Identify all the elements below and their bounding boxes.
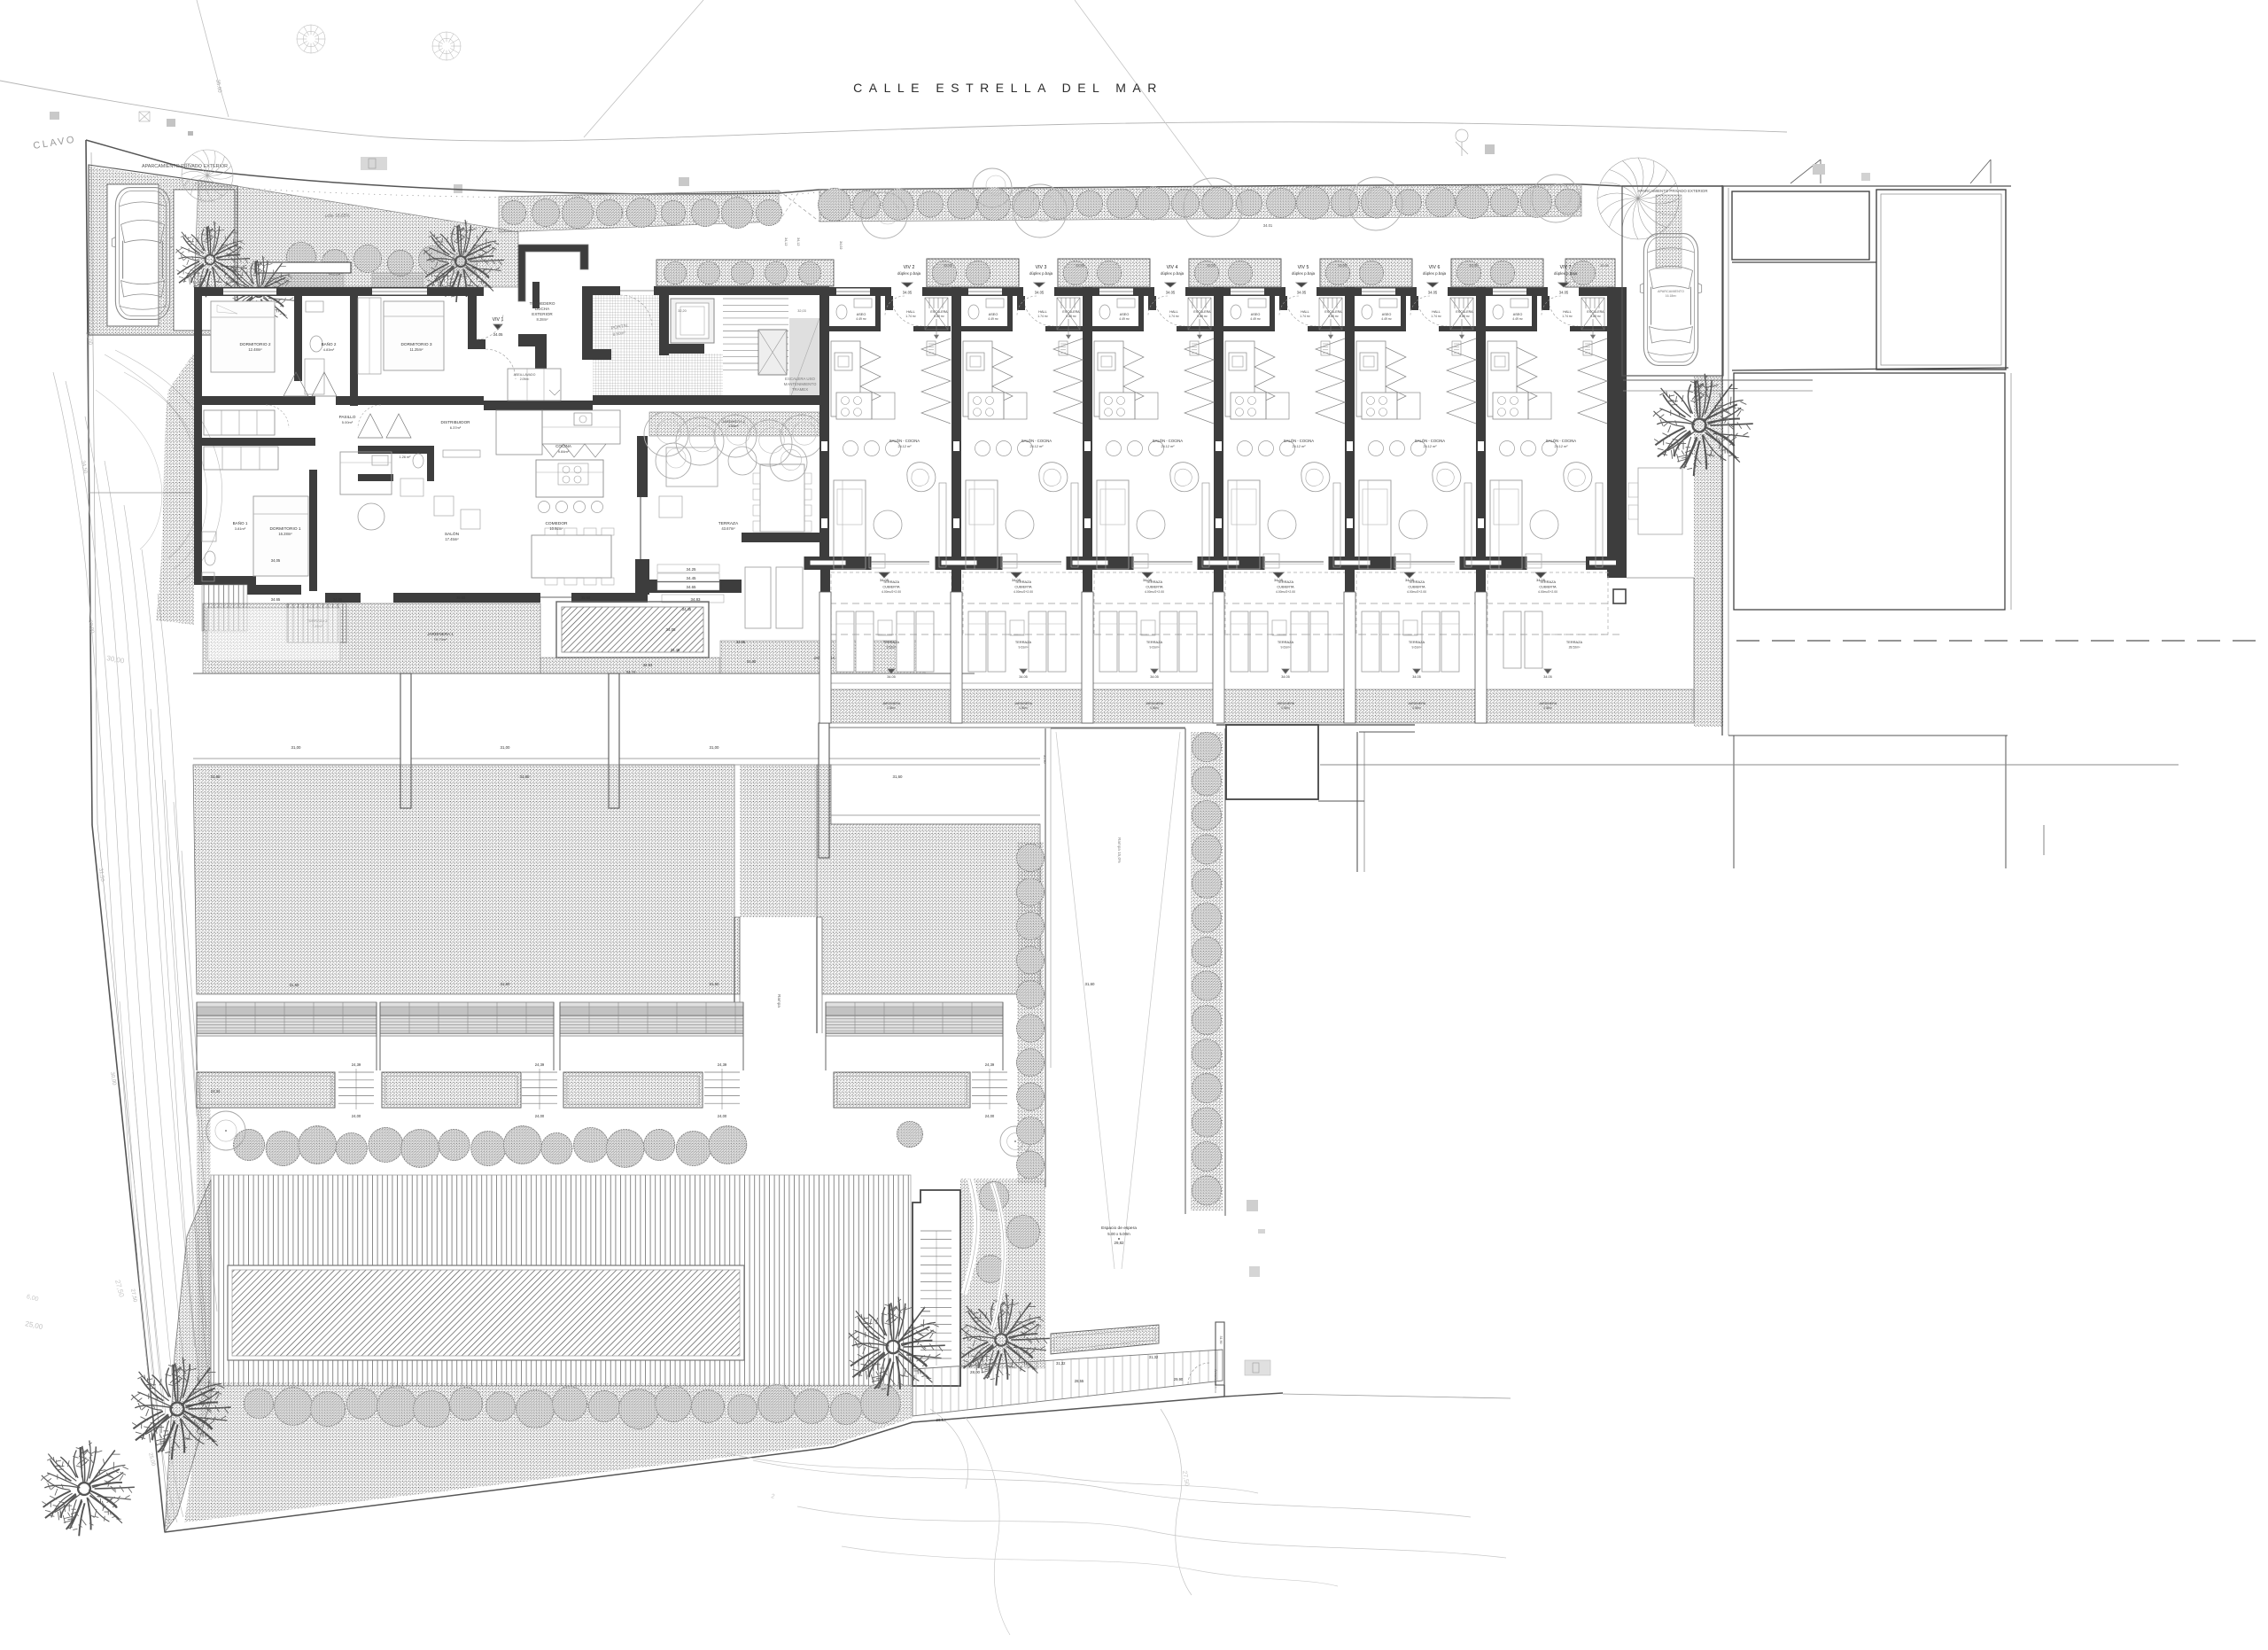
svg-text:9.61m²: 9.61m²	[1150, 646, 1161, 650]
svg-text:ASEO: ASEO	[1251, 313, 1261, 316]
svg-text:4.36m²: 4.36m²	[1412, 706, 1421, 710]
svg-text:VIV 2: VIV 2	[904, 265, 915, 270]
svg-text:24.12 m²: 24.12 m²	[898, 445, 913, 448]
svg-text:4.83m²: 4.83m²	[323, 347, 335, 352]
svg-text:VIV 6: VIV 6	[1429, 265, 1441, 270]
svg-text:17.45m²: 17.45m²	[445, 537, 459, 541]
svg-text:16.28m²: 16.28m²	[278, 532, 292, 536]
svg-text:CUBIERTA: CUBIERTA	[1277, 585, 1294, 589]
svg-text:33,95: 33,95	[1469, 264, 1478, 268]
svg-text:VIV 4: VIV 4	[1167, 265, 1178, 270]
svg-text:24,00: 24,00	[718, 1114, 727, 1118]
svg-text:29,90: 29,90	[1174, 1377, 1184, 1381]
svg-text:31,00: 31,00	[710, 745, 720, 750]
svg-text:31,60: 31,60	[710, 982, 720, 986]
svg-text:33,95: 33,95	[1600, 264, 1609, 268]
svg-text:Rampa: Rampa	[777, 994, 781, 1008]
svg-text:SALÓN - COCINA: SALÓN - COCINA	[1153, 439, 1183, 443]
svg-text:34.05: 34.05	[1405, 578, 1415, 582]
svg-text:CALLE ESTRELLA DEL MAR: CALLE ESTRELLA DEL MAR	[853, 81, 1163, 95]
svg-text:34.05: 34.05	[1412, 675, 1421, 679]
svg-text:34.05: 34.05	[1543, 675, 1552, 679]
svg-text:28,55: 28,55	[1075, 1379, 1084, 1383]
svg-text:24,34: 24,34	[211, 1089, 221, 1094]
svg-text:dúplex p.baja: dúplex p.baja	[1161, 271, 1184, 276]
svg-text:APARCAMIENTO PRIVADO EXTERIOR: APARCAMIENTO PRIVADO EXTERIOR	[142, 164, 228, 169]
svg-text:JARDINERA: JARDINERA	[1539, 702, 1557, 705]
svg-text:34.05: 34.05	[1150, 675, 1159, 679]
svg-text:24,00: 24,00	[985, 1114, 995, 1118]
svg-text:1.26 m²: 1.26 m²	[400, 455, 412, 459]
svg-text:TERRAZA: TERRAZA	[1409, 640, 1425, 644]
svg-text:SALÓN - COCINA: SALÓN - COCINA	[889, 439, 920, 443]
svg-text:29,82: 29,82	[1115, 1241, 1125, 1245]
svg-text:dúplex p.baja: dúplex p.baja	[1554, 271, 1578, 276]
svg-text:4.00m²/2+2.00: 4.00m²/2+2.00	[1407, 590, 1426, 594]
svg-text:PASILLO: PASILLO	[339, 415, 356, 419]
svg-text:HALL: HALL	[1169, 310, 1178, 314]
svg-text:pdte 16,65%: pdte 16,65%	[325, 214, 351, 219]
svg-text:CUBIERTA: CUBIERTA	[882, 585, 900, 589]
svg-text:JARDINERA: JARDINERA	[1014, 702, 1033, 705]
svg-text:TERRAZA: TERRAZA	[1015, 640, 1032, 644]
svg-text:JARDINERA 1: JARDINERA 1	[427, 632, 454, 636]
svg-text:34.05: 34.05	[880, 578, 889, 582]
svg-text:24,00: 24,00	[535, 1114, 545, 1118]
svg-text:31,00: 31,00	[291, 745, 302, 750]
svg-text:dúplex p.baja: dúplex p.baja	[897, 271, 921, 276]
svg-text:34.65: 34.65	[271, 597, 281, 602]
svg-text:EXTERIOR: EXTERIOR	[532, 312, 553, 316]
svg-text:24,39: 24,39	[718, 1062, 727, 1067]
svg-text:9.84m²: 9.84m²	[558, 449, 570, 454]
svg-text:34.05: 34.05	[903, 291, 913, 295]
svg-text:34.05: 34.05	[1012, 578, 1021, 582]
svg-text:31,32: 31,32	[1056, 1361, 1066, 1366]
svg-text:9.61m²: 9.61m²	[887, 646, 897, 650]
svg-text:28.52m²: 28.52m²	[1569, 646, 1581, 650]
svg-text:35.00: 35.00	[581, 595, 591, 600]
svg-text:34,05: 34,05	[666, 627, 677, 632]
svg-text:24,39: 24,39	[985, 1062, 995, 1067]
svg-text:24,00: 24,00	[352, 1114, 361, 1118]
svg-text:34.05: 34.05	[1143, 578, 1153, 582]
svg-text:ASEO: ASEO	[1120, 313, 1130, 316]
svg-text:31,60: 31,60	[520, 774, 531, 779]
svg-text:ASEO: ASEO	[400, 450, 410, 455]
svg-text:1.74 m²: 1.74 m²	[905, 315, 916, 318]
svg-text:31,60: 31,60	[211, 774, 221, 779]
svg-text:34.45: 34.45	[687, 576, 697, 580]
svg-text:SALÓN - COCINA: SALÓN - COCINA	[1021, 439, 1052, 443]
svg-text:34.05: 34.05	[1536, 578, 1546, 582]
svg-text:24,39: 24,39	[352, 1062, 361, 1067]
svg-text:SALÓN - COCINA: SALÓN - COCINA	[1546, 439, 1576, 443]
svg-text:ESCALERA USO: ESCALERA USO	[785, 377, 816, 381]
svg-text:16.18m²: 16.18m²	[1666, 294, 1677, 298]
svg-text:ASEA-LAVADO: ASEA-LAVADO	[514, 373, 536, 377]
svg-text:34,05: 34,05	[271, 558, 281, 563]
svg-text:9.61m²: 9.61m²	[1281, 646, 1292, 650]
svg-text:4.36m²: 4.36m²	[1019, 706, 1028, 710]
svg-text:CUBIERTA: CUBIERTA	[1014, 585, 1032, 589]
svg-text:JARDINERA: JARDINERA	[882, 702, 901, 705]
svg-text:32,20: 32,20	[678, 309, 687, 313]
svg-text:dúplex p.baja: dúplex p.baja	[1423, 271, 1447, 276]
svg-text:4.49 m²: 4.49 m²	[856, 317, 866, 321]
svg-text:1.74 m²: 1.74 m²	[1169, 315, 1179, 318]
svg-text:5.00m²: 5.00m²	[342, 420, 353, 424]
svg-text:34.65: 34.65	[687, 585, 697, 589]
svg-text:CUBIERTA: CUBIERTA	[1539, 585, 1557, 589]
svg-text:ASEO: ASEO	[989, 313, 998, 316]
svg-text:43.67m²: 43.67m²	[721, 526, 735, 531]
svg-text:31,32: 31,32	[1149, 1355, 1159, 1359]
svg-text:32,03: 32,03	[797, 309, 806, 313]
svg-text:34.01: 34.01	[1263, 223, 1273, 228]
svg-text:31,00: 31,00	[501, 745, 511, 750]
svg-text:ASEO: ASEO	[1382, 313, 1392, 316]
svg-text:24.12 m²: 24.12 m²	[1161, 445, 1176, 448]
svg-text:TERRAZA: TERRAZA	[1566, 640, 1583, 644]
svg-text:31,60: 31,60	[893, 774, 904, 779]
svg-text:34.83: 34.83	[643, 663, 653, 667]
svg-text:5.00 x 5.00m: 5.00 x 5.00m	[1107, 1232, 1130, 1236]
svg-text:31,60: 31,60	[501, 982, 511, 986]
svg-text:24.12 m²: 24.12 m²	[1555, 445, 1569, 448]
svg-text:TERRAZA: TERRAZA	[1278, 640, 1294, 644]
svg-text:SALÓN - COCINA: SALÓN - COCINA	[1415, 439, 1445, 443]
svg-text:6.37m²: 6.37m²	[450, 425, 462, 430]
svg-text:1.74 m²: 1.74 m²	[1562, 315, 1573, 318]
svg-text:ASEO: ASEO	[857, 313, 866, 316]
svg-text:34.05: 34.05	[1274, 578, 1284, 582]
svg-text:HALL: HALL	[906, 310, 915, 314]
svg-text:ESCALERA: ESCALERA	[1324, 310, 1342, 314]
svg-text:34.05: 34.05	[1297, 291, 1307, 295]
svg-text:VIV 5: VIV 5	[1298, 265, 1309, 270]
svg-text:34,45: 34,45	[671, 648, 680, 652]
svg-text:JARDINERA: JARDINERA	[1146, 702, 1164, 705]
svg-text:JARDINERA: JARDINERA	[1408, 702, 1426, 705]
svg-text:COCINA: COCINA	[555, 444, 572, 448]
svg-text:DISTRIBUIDOR: DISTRIBUIDOR	[441, 420, 471, 424]
svg-text:HALL: HALL	[1038, 310, 1047, 314]
svg-text:31,90: 31,90	[1219, 1336, 1223, 1344]
svg-text:CUBIERTA: CUBIERTA	[1146, 585, 1163, 589]
svg-text:11.25m²: 11.25m²	[409, 347, 423, 352]
svg-text:31,90: 31,90	[1043, 755, 1046, 764]
svg-text:VIV 7: VIV 7	[1560, 265, 1572, 270]
svg-text:APARCAMIENTO PRIVADO EXTERIOR: APARCAMIENTO PRIVADO EXTERIOR	[1637, 189, 1707, 193]
svg-text:4.00m²/2+2.00: 4.00m²/2+2.00	[1276, 590, 1295, 594]
svg-text:33,95: 33,95	[1076, 264, 1084, 268]
svg-text:34.05: 34.05	[1166, 291, 1176, 295]
svg-text:ESCALERA: ESCALERA	[930, 310, 948, 314]
svg-text:BAÑO 2: BAÑO 2	[322, 341, 337, 346]
svg-text:34.05: 34.05	[1019, 675, 1028, 679]
svg-text:Espacio de espera: Espacio de espera	[1101, 1226, 1137, 1231]
svg-text:ASEO: ASEO	[1513, 313, 1523, 316]
svg-text:34.25: 34.25	[687, 567, 697, 572]
svg-text:33,95: 33,95	[1207, 264, 1216, 268]
svg-text:33,95: 33,95	[944, 264, 952, 268]
svg-text:4.36m²: 4.36m²	[887, 706, 896, 710]
svg-text:TERRAZA: TERRAZA	[883, 640, 900, 644]
svg-text:APARCAMIENTO: APARCAMIENTO	[1658, 290, 1684, 293]
svg-text:TRAMEX: TRAMEX	[792, 387, 808, 392]
svg-text:31,60: 31,60	[1085, 982, 1096, 986]
svg-text:BAÑO 1: BAÑO 1	[233, 520, 248, 525]
svg-text:34.05: 34.05	[1035, 291, 1045, 295]
svg-text:VIV 3: VIV 3	[1036, 265, 1047, 270]
svg-text:HALL: HALL	[1301, 310, 1309, 314]
svg-text:34.05: 34.05	[1559, 291, 1569, 295]
svg-text:HALL: HALL	[1432, 310, 1441, 314]
svg-text:8.28m²: 8.28m²	[536, 317, 548, 322]
svg-text:12.48m²: 12.48m²	[248, 347, 262, 352]
svg-text:2.09m²: 2.09m²	[520, 377, 530, 381]
svg-text:4.00m²/2+2.00: 4.00m²/2+2.00	[1014, 590, 1033, 594]
svg-text:DUCHA: DUCHA	[535, 307, 550, 311]
svg-text:dúplex p.baja: dúplex p.baja	[1029, 271, 1053, 276]
svg-text:34.05: 34.05	[1428, 291, 1438, 295]
svg-text:34,12: 34,12	[784, 237, 788, 246]
svg-text:4.49 m²: 4.49 m²	[988, 317, 998, 321]
svg-text:4.00m²/2+2.00: 4.00m²/2+2.00	[882, 590, 901, 594]
svg-text:SALÓN: SALÓN	[445, 531, 460, 537]
svg-text:34,60: 34,60	[747, 659, 757, 664]
svg-text:SALÓN - COCINA: SALÓN - COCINA	[1284, 439, 1314, 443]
svg-text:TENDEDERO: TENDEDERO	[530, 301, 555, 306]
svg-text:79.73m²: 79.73m²	[434, 637, 447, 642]
svg-text:MANTENIMIENTO: MANTENIMIENTO	[784, 382, 817, 386]
svg-text:34.65: 34.65	[736, 640, 746, 644]
svg-text:1.74 m²: 1.74 m²	[1300, 315, 1310, 318]
svg-text:TERRAZA: TERRAZA	[1146, 640, 1163, 644]
svg-text:4.36m²: 4.36m²	[1150, 706, 1159, 710]
svg-text:4.36m²: 4.36m²	[1543, 706, 1552, 710]
svg-text:ESCALERA: ESCALERA	[1193, 310, 1211, 314]
svg-text:4.49 m²: 4.49 m²	[1381, 317, 1392, 321]
svg-text:34.83: 34.83	[691, 597, 702, 602]
svg-text:34,12: 34,12	[796, 237, 800, 246]
svg-text:10.92m²: 10.92m²	[549, 526, 563, 531]
svg-text:3.81m²: 3.81m²	[235, 526, 246, 531]
svg-text:1.74 m²: 1.74 m²	[1431, 315, 1441, 318]
svg-text:34,02: 34,02	[839, 241, 843, 250]
svg-text:34.05: 34.05	[1281, 675, 1290, 679]
svg-text:4.00m²/2+2.00: 4.00m²/2+2.00	[1538, 590, 1557, 594]
svg-text:28,00: 28,00	[970, 1370, 981, 1374]
svg-text:34.85: 34.85	[333, 597, 343, 602]
svg-text:4.49 m²: 4.49 m²	[1250, 317, 1261, 321]
svg-text:ESCALERA: ESCALERA	[1062, 310, 1080, 314]
svg-text:4.36m²: 4.36m²	[1281, 706, 1290, 710]
svg-text:34,45: 34,45	[682, 607, 692, 611]
svg-text:24.12 m²: 24.12 m²	[1293, 445, 1307, 448]
svg-text:HALL: HALL	[1563, 310, 1572, 314]
svg-text:5.65m²: 5.65m²	[728, 424, 739, 428]
svg-text:24,39: 24,39	[535, 1062, 545, 1067]
svg-text:24.12 m²: 24.12 m²	[1030, 445, 1045, 448]
svg-text:31,60: 31,60	[290, 983, 300, 987]
svg-text:9.61m²: 9.61m²	[1412, 646, 1423, 650]
svg-text:Rampa 15,0%: Rampa 15,0%	[1117, 837, 1122, 863]
svg-text:CUBIERTA: CUBIERTA	[1408, 585, 1425, 589]
svg-text:33,95: 33,95	[1338, 264, 1347, 268]
svg-text:24.12 m²: 24.12 m²	[1424, 445, 1438, 448]
svg-text:4.49 m²: 4.49 m²	[1512, 317, 1523, 321]
svg-text:JARDINERA: JARDINERA	[1277, 702, 1295, 705]
svg-text:1.74 m²: 1.74 m²	[1037, 315, 1048, 318]
svg-text:ESCALERA: ESCALERA	[1456, 310, 1473, 314]
svg-text:ESCALERA: ESCALERA	[1587, 310, 1604, 314]
svg-text:4.49 m²: 4.49 m²	[1119, 317, 1130, 321]
svg-text:JARDINERA 2: JARDINERA 2	[722, 419, 746, 424]
svg-text:dúplex p.baja: dúplex p.baja	[1292, 271, 1316, 276]
svg-text:4.00m²/2+2.00: 4.00m²/2+2.00	[1145, 590, 1164, 594]
svg-text:9.61m²: 9.61m²	[1019, 646, 1029, 650]
svg-text:34.05: 34.05	[493, 332, 504, 337]
svg-text:34.05: 34.05	[887, 675, 896, 679]
svg-text:35.00: 35.00	[456, 595, 466, 600]
